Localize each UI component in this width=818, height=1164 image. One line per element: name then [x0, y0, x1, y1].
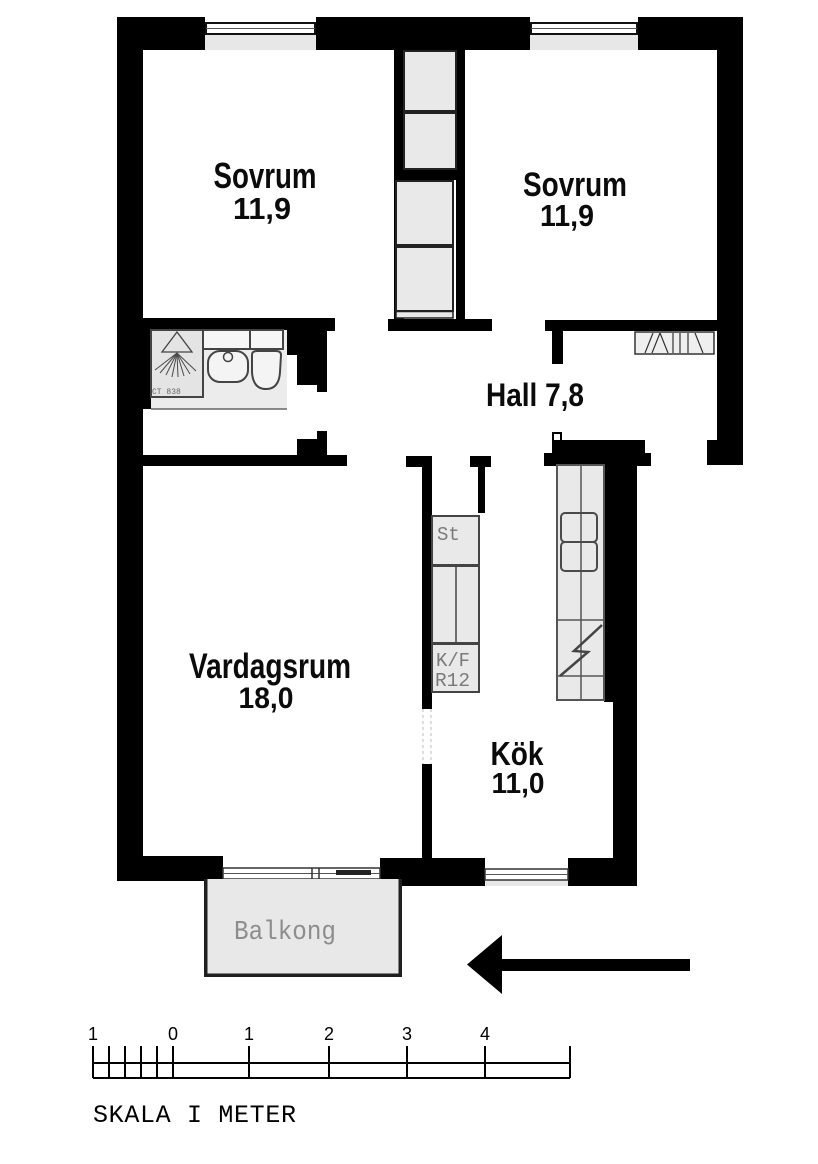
svg-text:SKALA I METER: SKALA I METER	[93, 1101, 296, 1130]
svg-text:St: St	[437, 524, 460, 546]
svg-text:CT 838: CT 838	[152, 388, 181, 397]
svg-text:1: 1	[88, 1024, 98, 1044]
svg-text:Sovrum: Sovrum	[214, 155, 317, 196]
svg-text:Vardagsrum: Vardagsrum	[189, 647, 351, 686]
svg-text:Balkong: Balkong	[234, 918, 336, 948]
svg-text:Kök: Kök	[491, 735, 545, 772]
svg-text:2: 2	[324, 1024, 334, 1044]
svg-text:11,0: 11,0	[492, 768, 545, 800]
svg-text:Hall 7,8: Hall 7,8	[486, 377, 584, 413]
svg-text:4: 4	[480, 1024, 490, 1044]
svg-text:0: 0	[168, 1024, 178, 1044]
svg-text:11,9: 11,9	[233, 191, 291, 226]
svg-text:R12: R12	[435, 670, 470, 692]
svg-text:K/F: K/F	[436, 650, 470, 672]
svg-text:1: 1	[244, 1024, 254, 1044]
svg-text:11,9: 11,9	[540, 198, 594, 233]
svg-text:3: 3	[402, 1024, 412, 1044]
svg-text:18,0: 18,0	[239, 682, 294, 715]
